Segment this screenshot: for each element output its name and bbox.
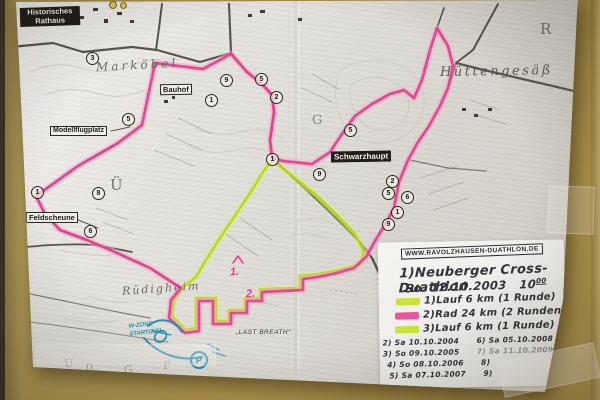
route-checkpoint: 9 — [382, 218, 395, 231]
route-checkpoint: 1 — [266, 153, 279, 166]
label-feldscheune: Feldscheune — [26, 212, 78, 223]
route-checkpoint: 5 — [122, 113, 135, 126]
course-point-2: 2. — [246, 288, 256, 300]
route-checkpoint: 3 — [86, 52, 99, 65]
pink-arrow — [233, 256, 243, 263]
route-checkpoint: 6 — [84, 225, 97, 238]
tape-right — [547, 185, 595, 235]
grid-letter-g: G — [312, 113, 322, 128]
route-checkpoint: 6 — [401, 191, 414, 204]
contour-lines — [30, 59, 424, 323]
route-checkpoint: 8 — [92, 187, 105, 200]
label-historisches-rathaus: Historisches Rathaus — [20, 6, 81, 27]
pin-head — [120, 2, 127, 9]
route-checkpoint: 1 — [205, 94, 218, 107]
course-point-1: 1. — [230, 266, 240, 279]
map-paper: P Historisches Rathaus Schwarzhaupt Bauh… — [0, 0, 600, 400]
legend-swatch-pink — [395, 312, 419, 320]
route-checkpoint: 9 — [313, 168, 326, 181]
label-bauhof: Bauhof — [160, 84, 192, 96]
legend-swatch-green — [395, 326, 419, 334]
place-huettengesaess: Hüttengesäß — [440, 63, 553, 80]
route-checkpoint: 5 — [255, 73, 268, 86]
route-checkpoint: 9 — [220, 74, 233, 87]
label-modellflugplatz: Modellflugplatz — [50, 126, 107, 136]
route-checkpoint: 5 — [382, 187, 395, 200]
route-checkpoint: 2 — [270, 91, 283, 104]
map-paper-wrap: P Historisches Rathaus Schwarzhaupt Bauh… — [0, 0, 600, 400]
photo-of-course-map: P Historisches Rathaus Schwarzhaupt Bauh… — [0, 0, 600, 400]
grid-letter-u-uml: Ü — [110, 176, 123, 194]
time-superscript: 00 — [536, 277, 547, 285]
legend-swatch-green — [396, 298, 420, 306]
time-text: 10 — [519, 277, 536, 292]
pin-head — [109, 1, 117, 9]
label-schwarzhaupt: Schwarzhaupt — [331, 150, 391, 162]
route-checkpoint: 5 — [344, 124, 357, 137]
route-checkpoint: 1 — [391, 206, 404, 219]
grid-letter-r: R — [540, 20, 551, 38]
tape-bottom — [36, 343, 216, 366]
route-checkpoint: 1 — [31, 186, 44, 199]
last-breath-note: „LAST BREATH“ — [236, 329, 291, 336]
